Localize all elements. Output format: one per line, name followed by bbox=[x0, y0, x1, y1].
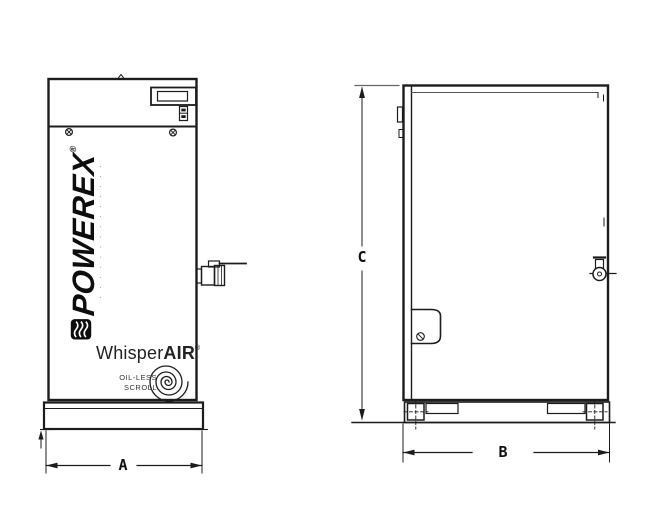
base-height-arrow bbox=[38, 431, 43, 449]
screw-icon bbox=[66, 129, 73, 136]
powerex-text: POWEREX bbox=[66, 151, 101, 317]
side-base bbox=[352, 400, 615, 430]
powerex-logo: POWEREX® · · · · · · · · · · · · · · bbox=[57, 146, 105, 340]
front-base bbox=[44, 403, 203, 430]
powerex-registered-mark: ® bbox=[68, 145, 78, 153]
powerex-wordmark: POWEREX® bbox=[58, 144, 99, 317]
oil-less-scroll-label: OIL-LESS SCROLL bbox=[99, 373, 157, 392]
side-view-outline bbox=[404, 86, 609, 401]
control-display-icon bbox=[151, 88, 196, 106]
screw-icon bbox=[170, 129, 177, 136]
drain-valve-icon bbox=[590, 258, 616, 281]
powerex-waves-icon bbox=[70, 319, 92, 340]
dimension-b-label: B bbox=[494, 444, 512, 460]
whisperair-logo: WhisperAIR® bbox=[96, 343, 200, 364]
oil-less-line: OIL-LESS bbox=[99, 373, 157, 383]
whisperair-air: AIR bbox=[163, 343, 195, 363]
technical-drawing-canvas: POWEREX® · · · · · · · · · · · · · · Whi… bbox=[0, 0, 650, 527]
door-hinge-icon bbox=[398, 107, 404, 138]
dimension-c-label: C bbox=[353, 249, 371, 265]
ball-valve-icon bbox=[197, 261, 247, 286]
whisperair-whisper: Whisper bbox=[96, 343, 163, 363]
mounting-slot-icon bbox=[548, 404, 586, 414]
scroll-line: SCROLL bbox=[99, 383, 157, 393]
door-latch-icon bbox=[412, 310, 441, 344]
dimension-a-label: A bbox=[114, 457, 132, 473]
whisperair-registered-mark: ® bbox=[195, 345, 200, 352]
keypad-buttons-icon bbox=[180, 107, 188, 121]
mounting-slot-icon bbox=[426, 404, 458, 414]
